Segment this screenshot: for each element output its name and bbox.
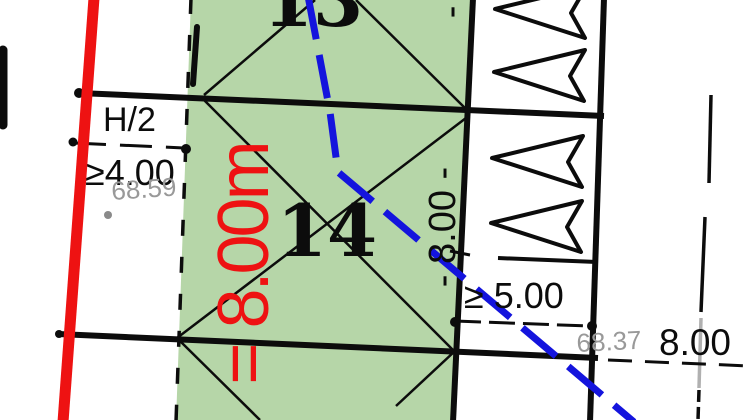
parcel-14-depth-label: - 8.00 - xyxy=(422,167,464,287)
dim-endpoint-dot xyxy=(450,317,460,327)
dim-endpoint-dot xyxy=(69,138,78,147)
elevation-right-label: 68.37 xyxy=(576,325,643,358)
site-plan-stage: 13 14 = 8.00m - 8.00 - - 8.00 - H/2 ≥4.0… xyxy=(0,0,750,420)
parcel-13-depth-label: - 8.00 - xyxy=(430,0,472,18)
boundary-point-marker-2 xyxy=(55,330,63,338)
red-depth-dimension-label: = 8.00m xyxy=(204,143,284,384)
height-ratio-label: H/2 xyxy=(103,101,156,139)
parcel-13-label: 13 xyxy=(263,0,363,43)
right-width-label: 8.00 xyxy=(659,322,731,363)
site-plan-canvas: 13 14 = 8.00m - 8.00 - - 8.00 - H/2 ≥4.0… xyxy=(0,0,750,420)
wall-segment xyxy=(193,27,197,84)
parcel-14-label: 14 xyxy=(277,188,377,273)
elevation-left-label: 68.59 xyxy=(110,172,177,206)
min-side-setback-label: ≥ 5.00 xyxy=(464,275,564,316)
spot-elevation-dot xyxy=(104,211,112,219)
right-lot-line-seg1 xyxy=(709,95,711,183)
dim-endpoint-dot xyxy=(181,144,191,154)
